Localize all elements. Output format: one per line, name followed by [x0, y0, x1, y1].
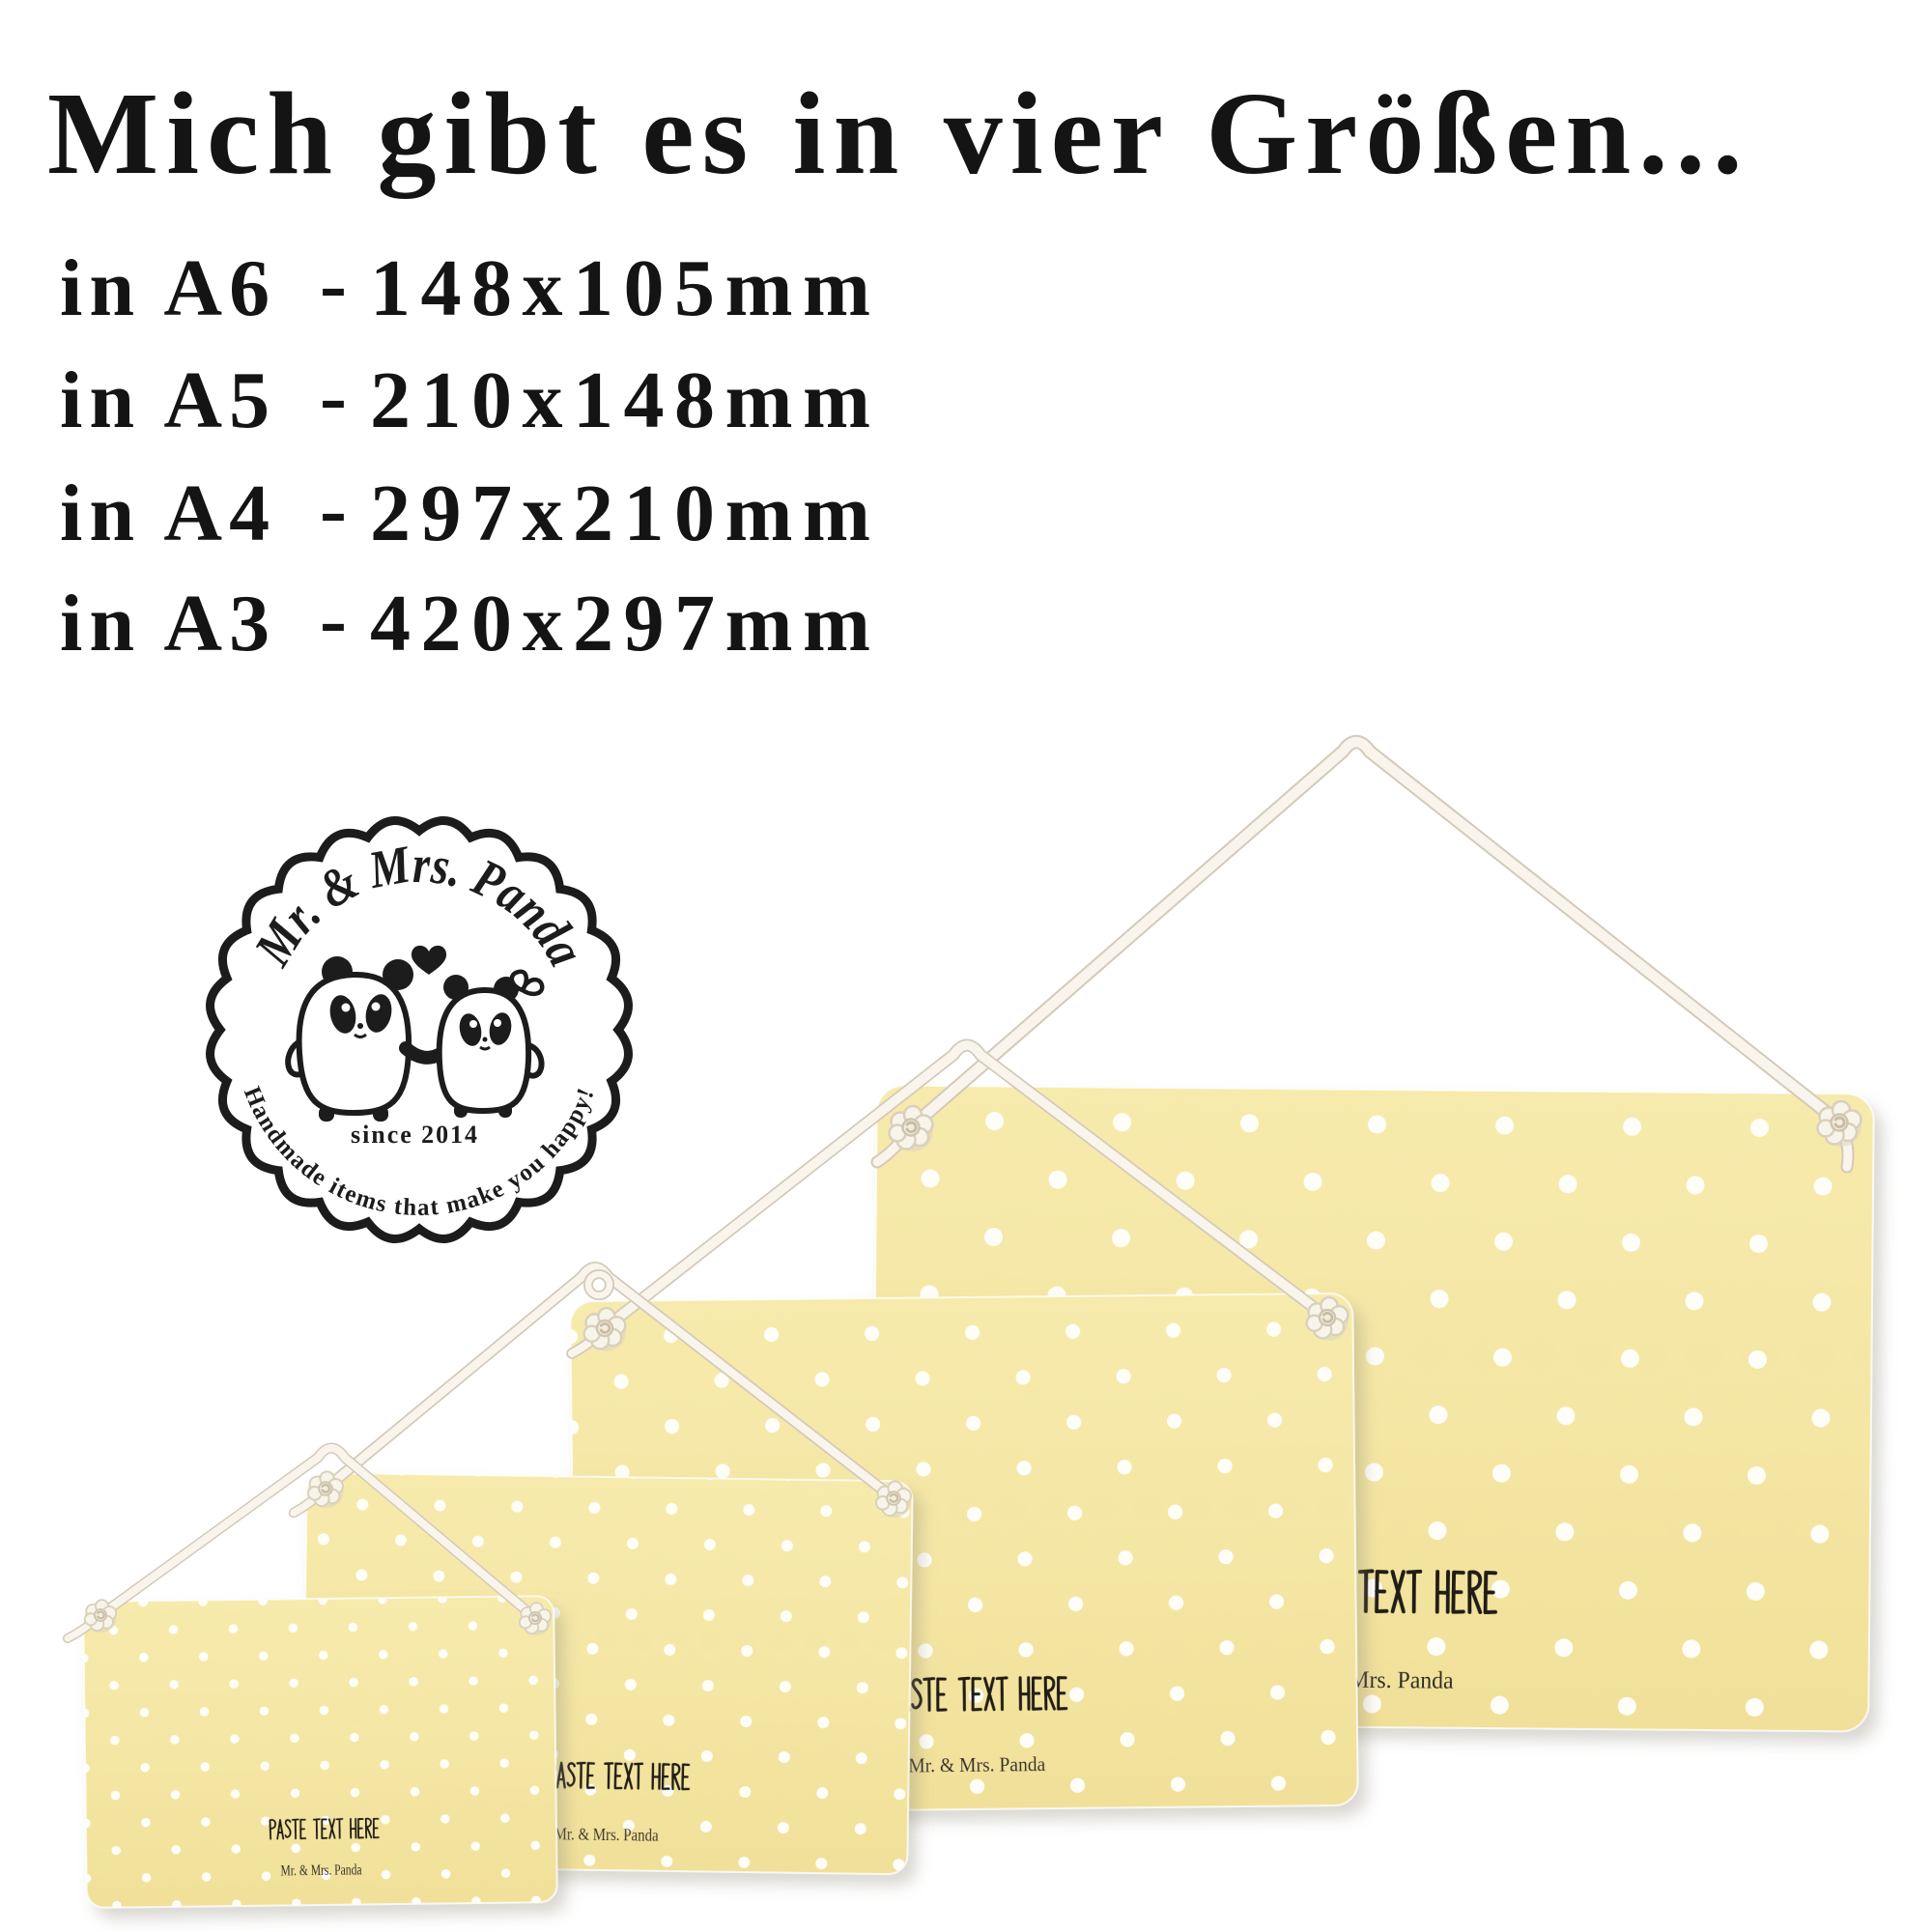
svg-text:Mr. & Mrs. Panda: Mr. & Mrs. Panda	[554, 1824, 659, 1845]
svg-text:Mich gibt es in vier Größen...: Mich gibt es in vier Größen...	[47, 69, 1750, 199]
svg-text:since 2014: since 2014	[351, 1121, 480, 1149]
svg-text:in A5: in A5	[60, 355, 276, 445]
svg-text:210x148mm: 210x148mm	[370, 355, 880, 445]
svg-text:-: -	[320, 465, 347, 554]
svg-text:297x210mm: 297x210mm	[370, 469, 880, 558]
svg-text:in A3: in A3	[60, 579, 276, 668]
svg-text:-: -	[320, 240, 347, 329]
svg-text:148x105mm: 148x105mm	[370, 243, 880, 333]
svg-text:-: -	[320, 352, 347, 441]
svg-text:in A4: in A4	[60, 469, 276, 558]
svg-text:in A6: in A6	[60, 243, 276, 333]
svg-text:-: -	[320, 575, 347, 665]
svg-text:Mr. & Mrs. Panda: Mr. & Mrs. Panda	[908, 1752, 1046, 1776]
svg-text:420x297mm: 420x297mm	[370, 579, 880, 668]
svg-text:Mr. & Mrs. Panda: Mr. & Mrs. Panda	[280, 1861, 361, 1879]
